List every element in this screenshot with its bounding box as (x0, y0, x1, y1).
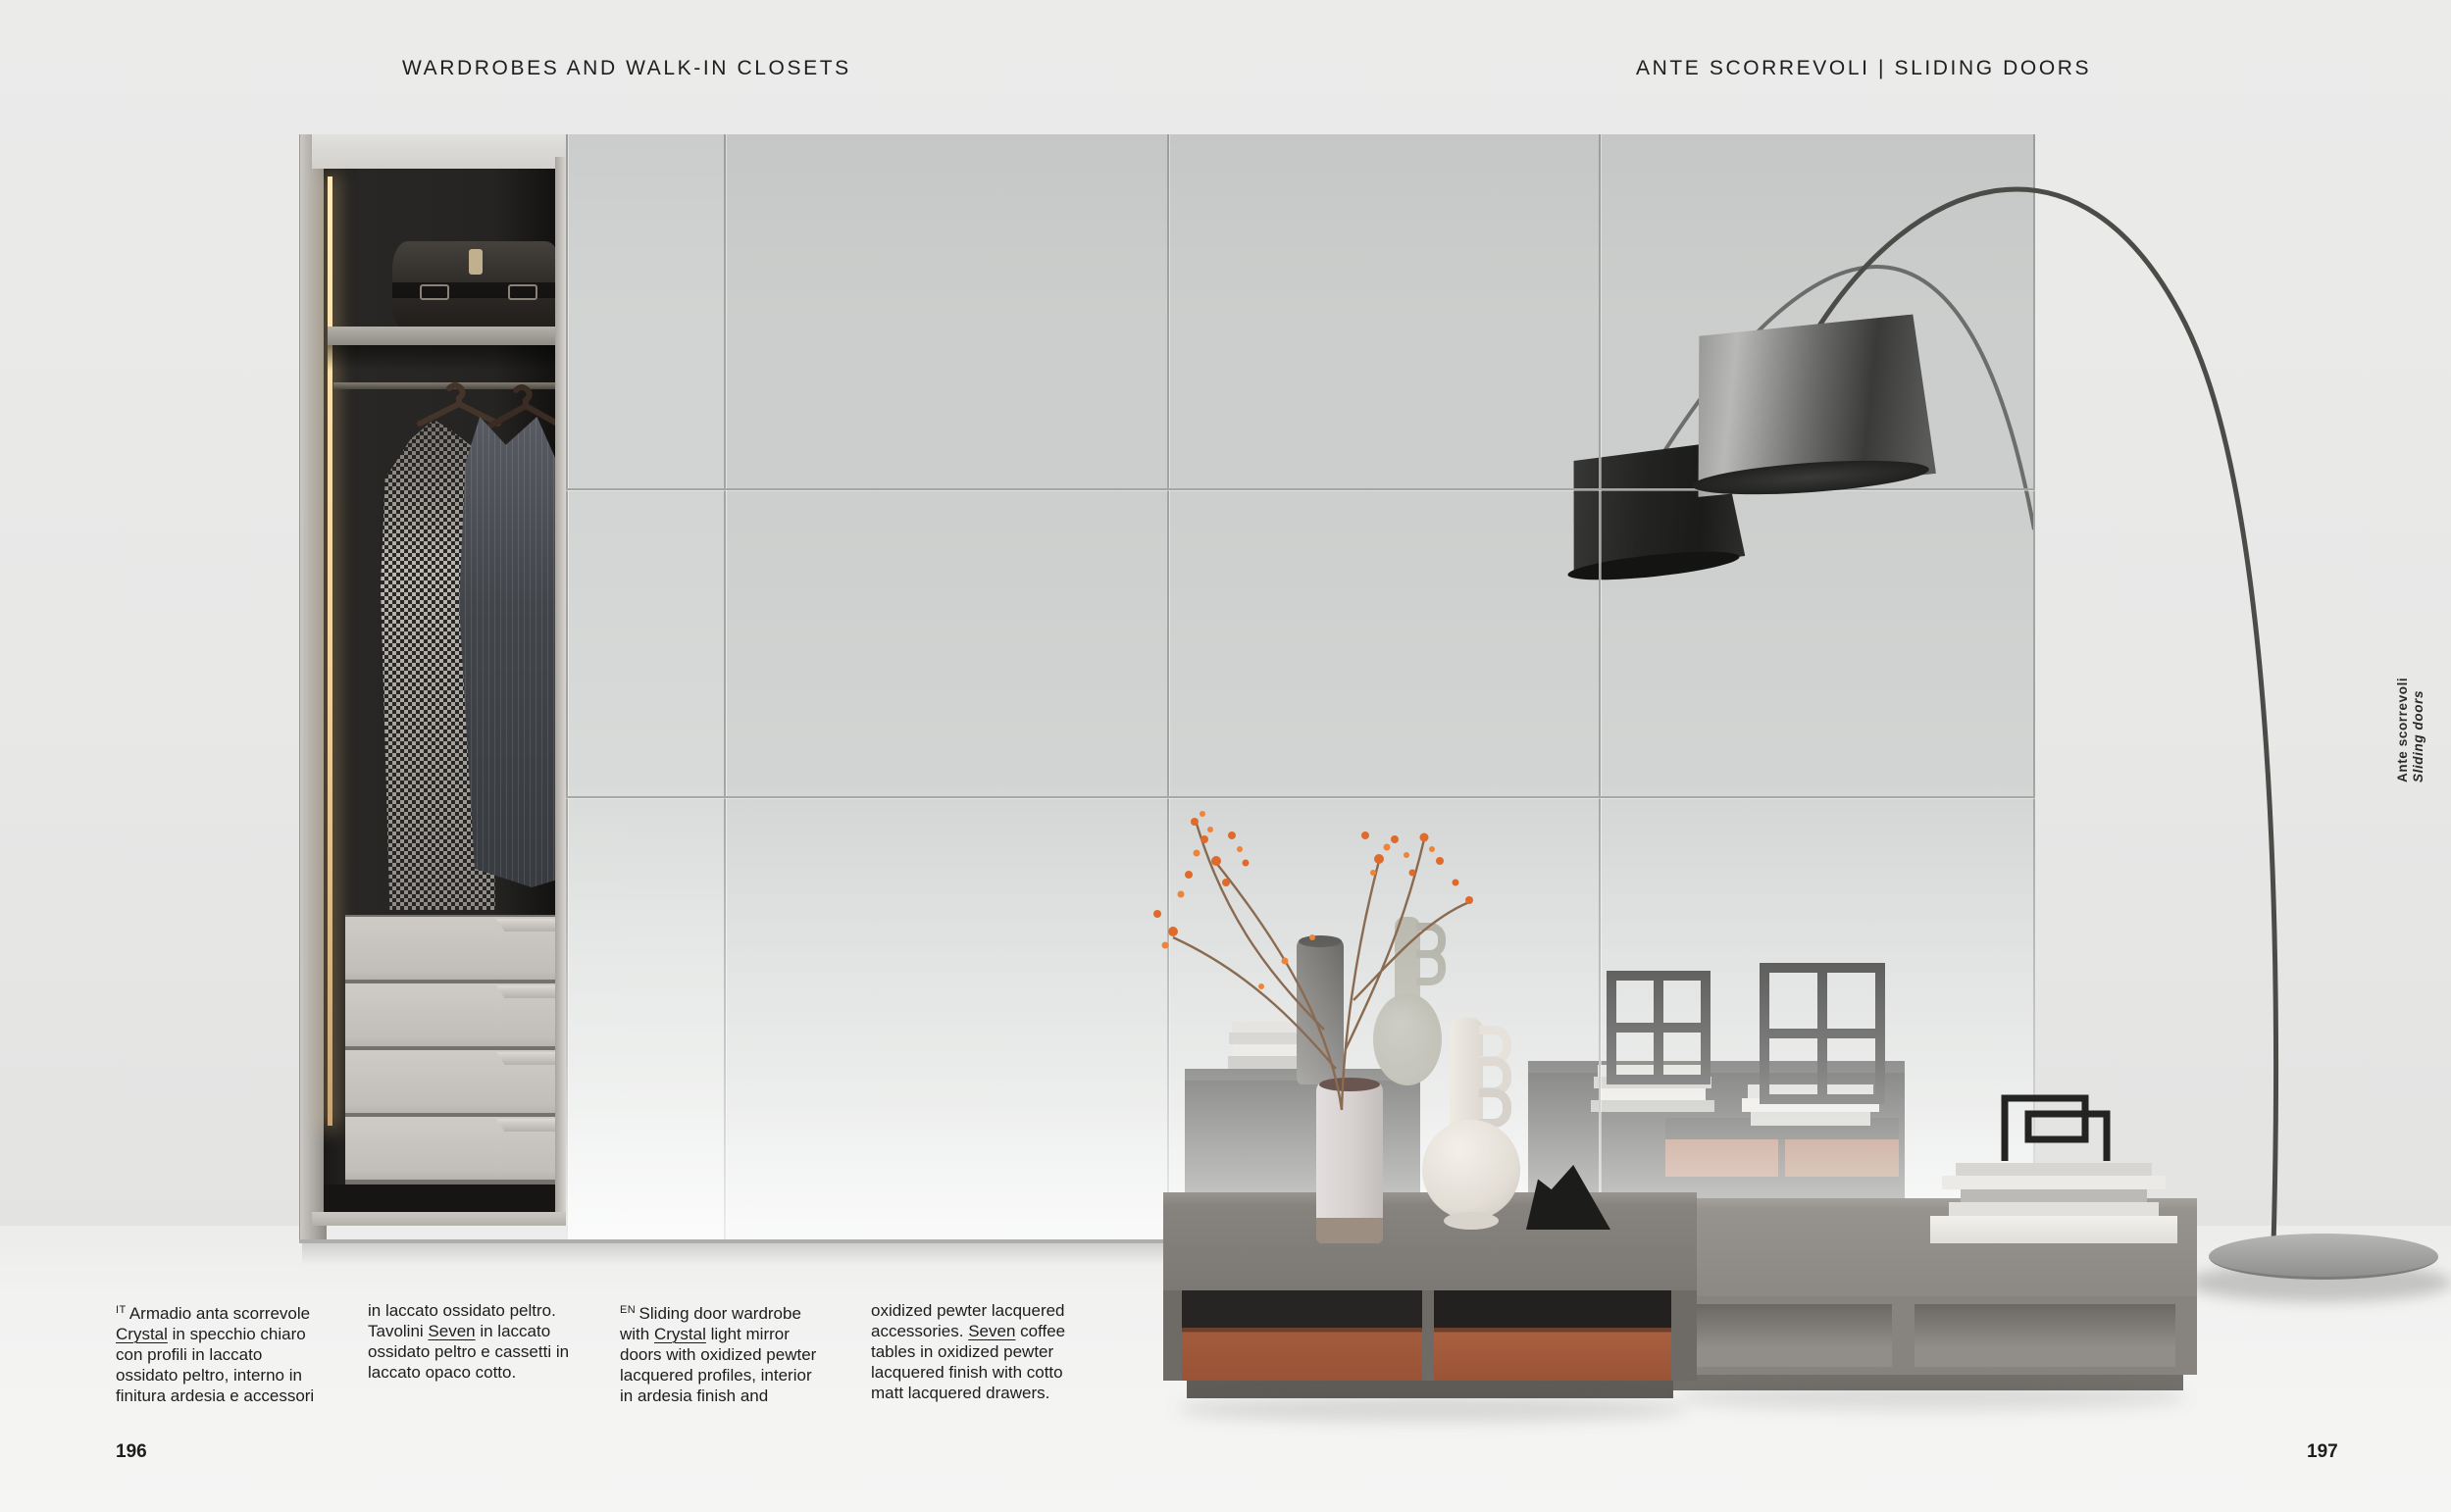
catalog-spread: WARDROBES AND WALK-IN CLOSETS ANTE SCORR… (0, 0, 2451, 1512)
page-number-right: 197 (2307, 1441, 2338, 1463)
door-seam (566, 134, 568, 1243)
side-label-line2: Sliding doors (2411, 645, 2426, 782)
terracotta-drawer (1434, 1328, 1671, 1381)
compartment-gap (1182, 1290, 1422, 1328)
reflected-terracotta-drawer (1665, 1139, 1778, 1177)
open-compartment (1915, 1304, 2175, 1367)
white-cylinder-vase (1316, 1083, 1383, 1243)
book (1600, 1088, 1706, 1100)
vase-body (1422, 1120, 1520, 1220)
table-shadow (1677, 1385, 2187, 1410)
vase-mouth (1299, 935, 1342, 947)
table-shadow (1177, 1396, 1687, 1422)
door-seam (1167, 134, 1169, 1243)
vase-mouth (1319, 1078, 1380, 1091)
book-thick-white (1930, 1216, 2177, 1243)
reflected-grid-sculpture (1760, 963, 1885, 1104)
lamp-base (2209, 1234, 2438, 1280)
door-seam (2033, 134, 2035, 1243)
vase-foot (1444, 1212, 1499, 1230)
page-title-right: ANTE SCORREVOLI | SLIDING DOORS (1636, 57, 2091, 80)
side-label-line1: Ante scorrevoli (2395, 645, 2411, 782)
open-compartment (1681, 1304, 1892, 1367)
reflected-grid-sculpture (1607, 971, 1711, 1084)
vase-neck (1450, 1018, 1483, 1135)
door-seam (1599, 134, 1601, 1243)
caption-column-2: in laccato ossidato peltro.Tavolini Seve… (368, 1300, 613, 1383)
side-tab-label: Ante scorrevoli Sliding doors (2395, 645, 2426, 782)
book (1949, 1202, 2159, 1216)
sculpture-bar (1817, 963, 1827, 1104)
table-compartment-band (1660, 1296, 2197, 1375)
book (1751, 1112, 1870, 1126)
vase-base-band (1316, 1218, 1383, 1243)
reflected-terracotta-drawer (1785, 1139, 1899, 1177)
page-title-left: WARDROBES AND WALK-IN CLOSETS (402, 57, 851, 80)
vase-ring (1416, 950, 1446, 985)
caption-column-1: IT Armadio anta scorrevoleCrystal in spe… (116, 1300, 361, 1406)
caption-column-3: EN Sliding door wardrobewith Crystal lig… (620, 1300, 865, 1406)
book-stack (1930, 1163, 2177, 1243)
wire-sculpture (1991, 1081, 2119, 1165)
reflected-table-a (1185, 1069, 1420, 1210)
door-seam (724, 134, 726, 1243)
book (1961, 1189, 2147, 1202)
table-compartment-band (1163, 1290, 1697, 1381)
terracotta-drawer (1182, 1328, 1422, 1381)
sculpture-bar (1654, 971, 1663, 1084)
compartment-gap (1434, 1290, 1671, 1328)
page-number-left: 196 (116, 1441, 147, 1463)
reflected-cylinder-vase (1297, 939, 1344, 1084)
caption-column-4: oxidized pewter lacqueredaccessories. Se… (871, 1300, 1116, 1403)
book (1942, 1176, 2166, 1189)
door-seam-horizontal (566, 796, 2035, 798)
cream-gourd-vase (1422, 1018, 1520, 1235)
book (1591, 1100, 1714, 1112)
